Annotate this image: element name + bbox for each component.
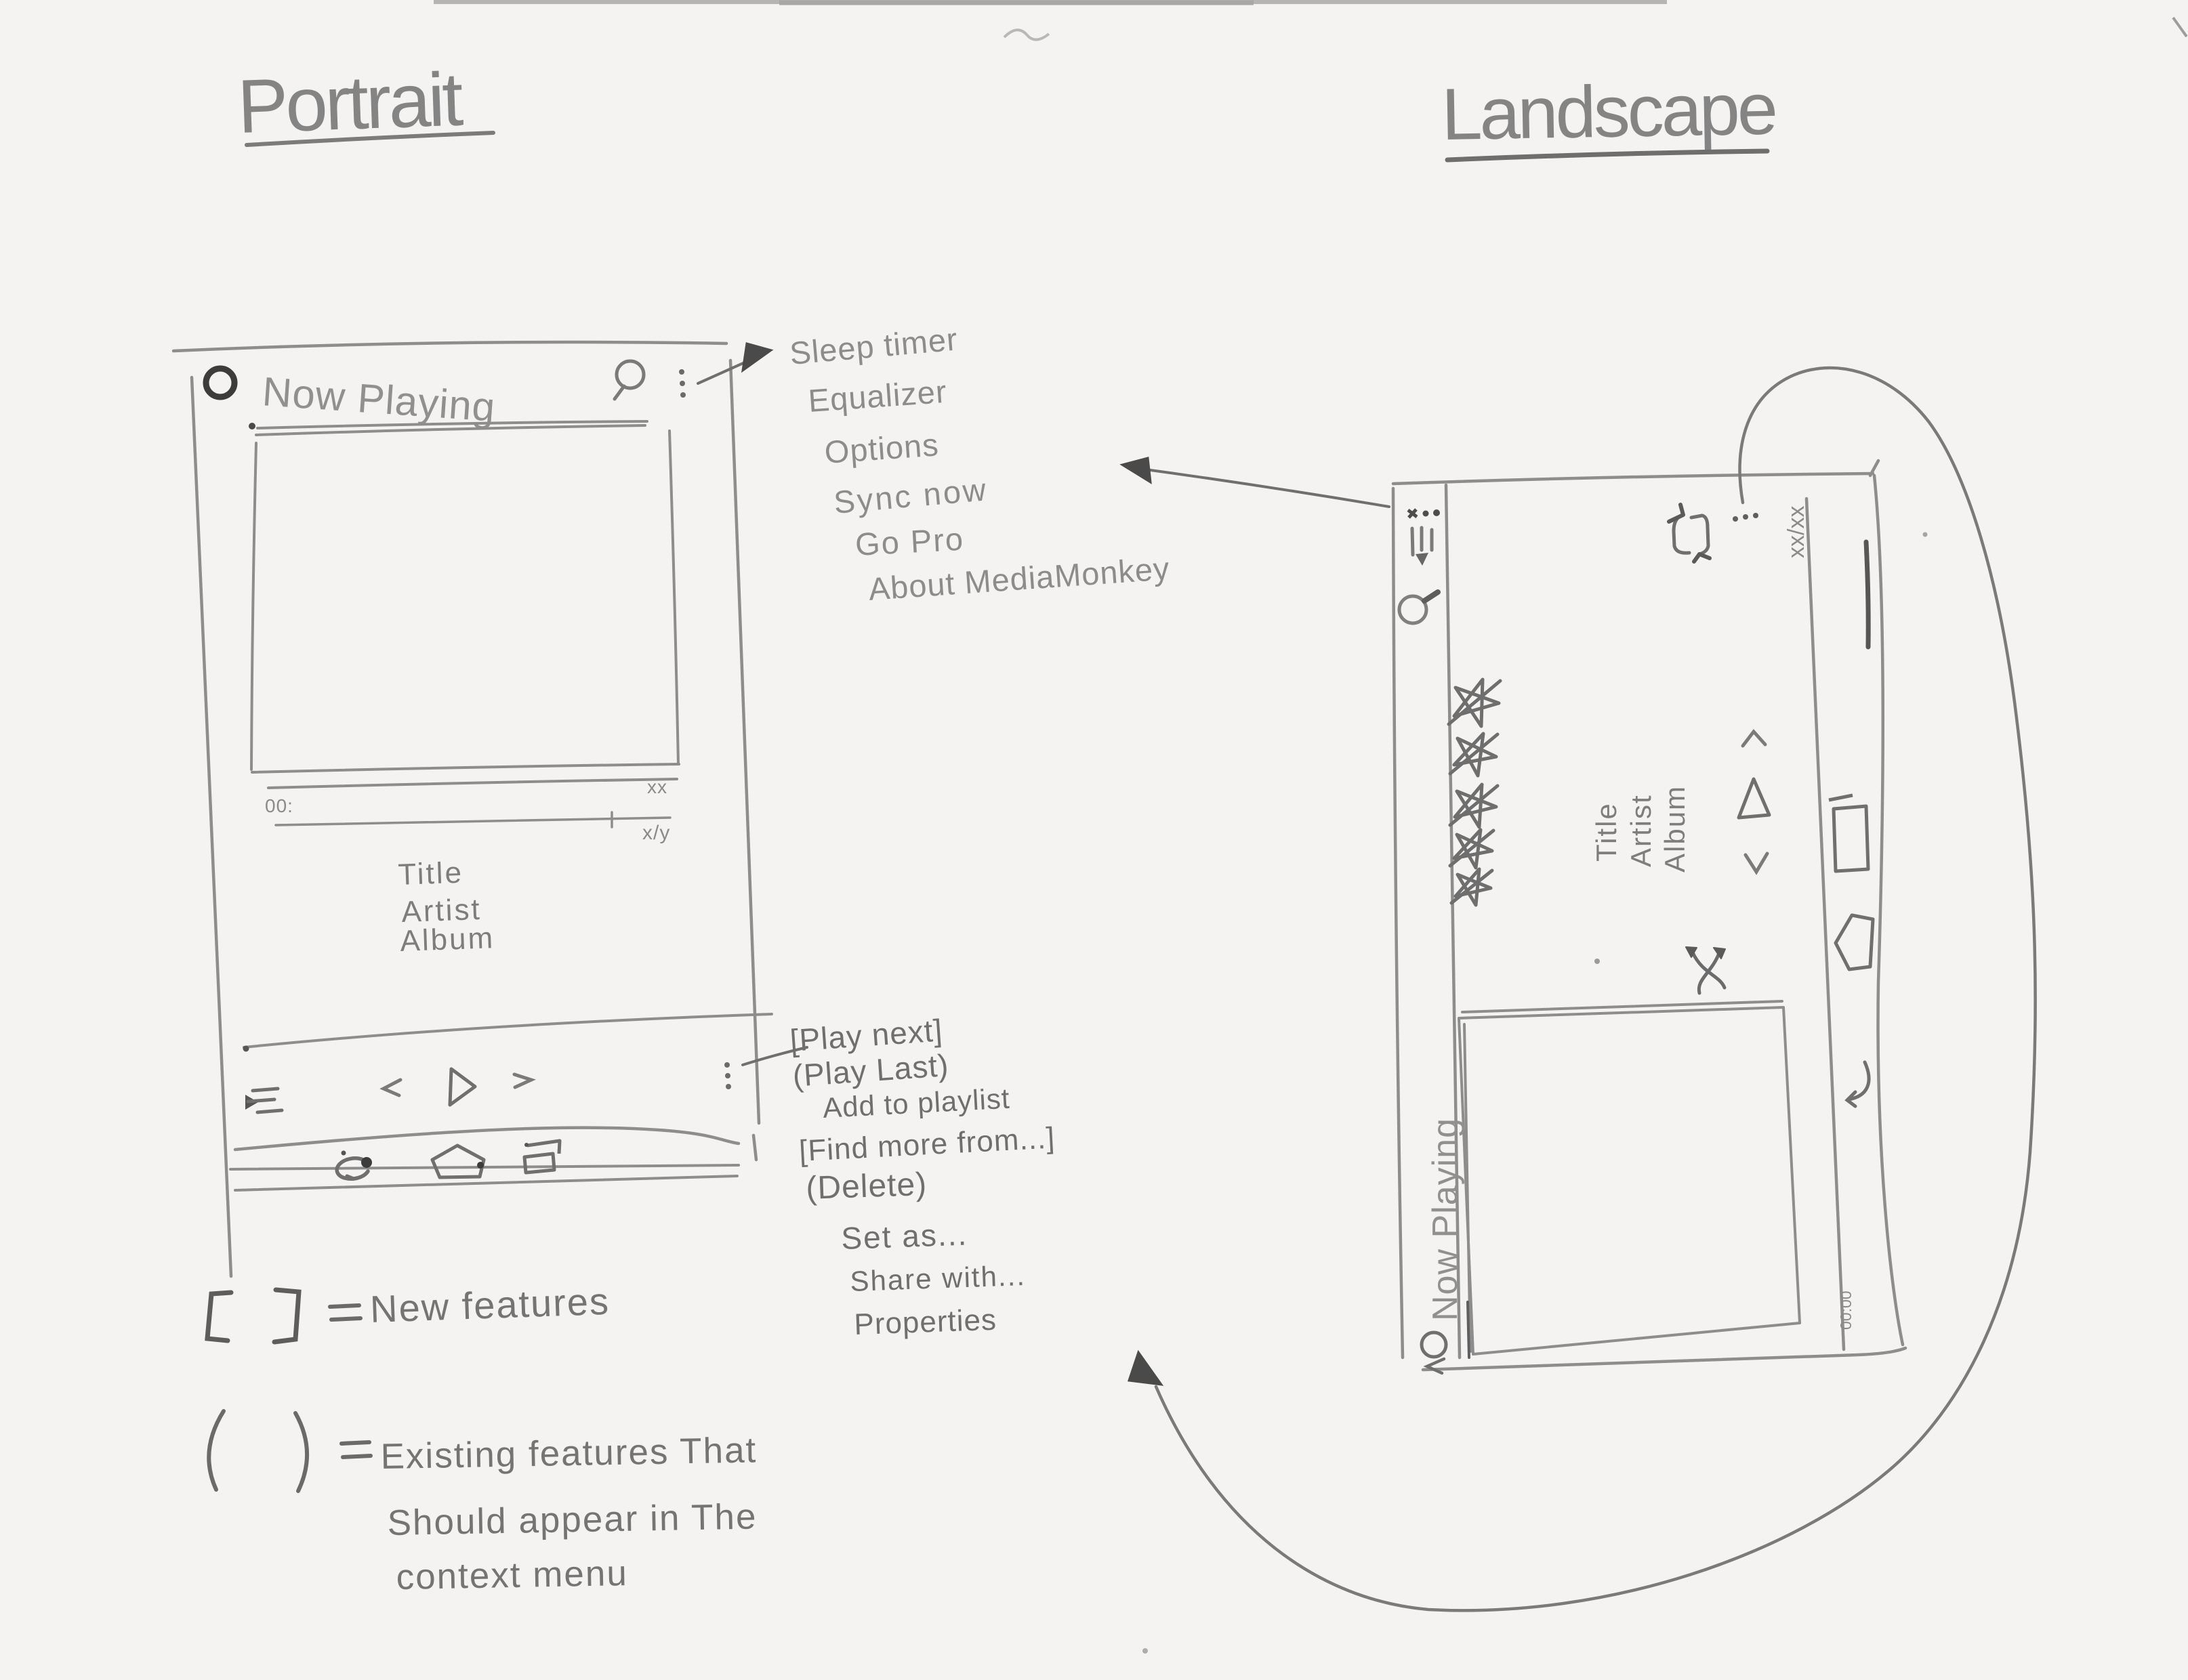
svg-text:Existing features That: Existing features That bbox=[380, 1430, 758, 1477]
svg-text:Album: Album bbox=[1659, 785, 1691, 873]
svg-text:Share with...: Share with... bbox=[850, 1259, 1027, 1297]
svg-text:xx: xx bbox=[647, 776, 667, 797]
svg-text:Set as...: Set as... bbox=[841, 1217, 968, 1256]
svg-text:x/y: x/y bbox=[642, 822, 670, 844]
svg-text:00:: 00: bbox=[265, 795, 293, 816]
svg-text:xx/xx: xx/xx bbox=[1783, 506, 1809, 558]
svg-text:(Delete): (Delete) bbox=[806, 1167, 928, 1206]
svg-text:Properties: Properties bbox=[854, 1303, 997, 1341]
svg-text:Artist: Artist bbox=[1625, 794, 1657, 867]
svg-text:context menu: context menu bbox=[396, 1553, 628, 1597]
svg-text:Title: Title bbox=[398, 856, 464, 891]
svg-text:Go Pro: Go Pro bbox=[854, 521, 965, 562]
svg-text:Album: Album bbox=[400, 921, 495, 958]
svg-text:Should appear in The: Should appear in The bbox=[387, 1496, 758, 1543]
svg-text:Landscape: Landscape bbox=[1441, 67, 1775, 155]
svg-text:New features: New features bbox=[369, 1280, 611, 1330]
svg-text:Now Playing: Now Playing bbox=[1426, 1118, 1465, 1321]
svg-text:00:00: 00:00 bbox=[1837, 1290, 1855, 1330]
svg-text:Title: Title bbox=[1590, 802, 1622, 862]
